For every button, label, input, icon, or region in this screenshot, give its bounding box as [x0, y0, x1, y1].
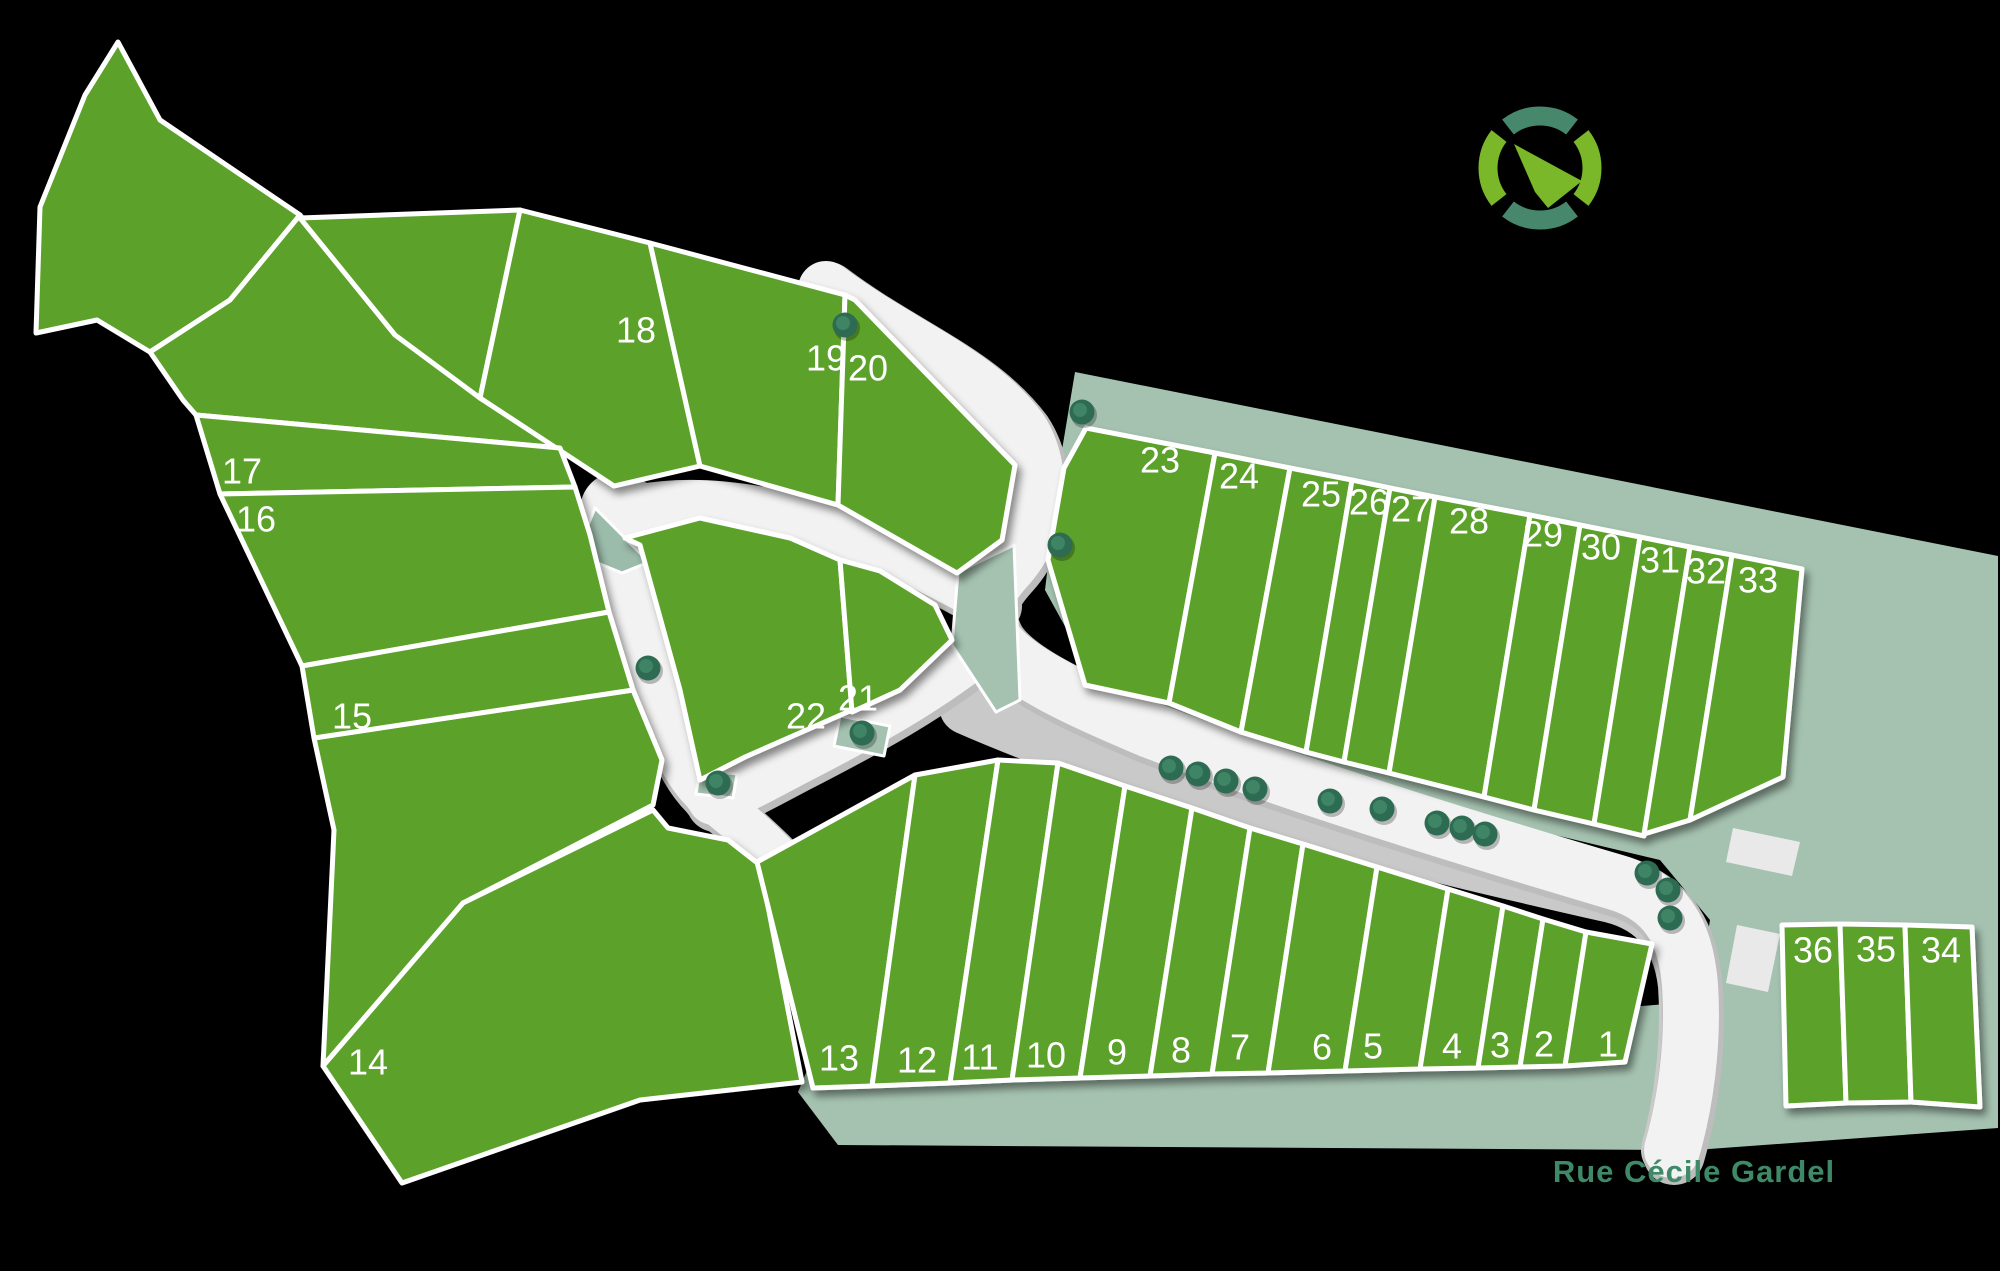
lot-label-19: 19 — [806, 338, 846, 379]
lot-label-25: 25 — [1301, 474, 1341, 515]
lot-label-4: 4 — [1442, 1026, 1462, 1067]
lot-label-34: 34 — [1921, 930, 1961, 971]
lot-label-26: 26 — [1349, 482, 1389, 523]
street-name: Rue Cécile Gardel — [1553, 1154, 1835, 1189]
lot-label-11: 11 — [961, 1037, 998, 1078]
lot-label-29: 29 — [1523, 514, 1563, 555]
lot-label-18: 18 — [616, 310, 656, 351]
lot-label-9: 9 — [1107, 1032, 1127, 1073]
lot-label-16: 16 — [236, 499, 276, 540]
compass-needle-icon — [1514, 144, 1582, 208]
lot-label-28: 28 — [1449, 501, 1489, 542]
lot-label-32: 32 — [1686, 551, 1726, 592]
compass-ring-arc — [1508, 209, 1572, 220]
lot-label-35: 35 — [1856, 929, 1896, 970]
lot-label-20: 20 — [848, 348, 888, 389]
lot-label-12: 12 — [897, 1040, 937, 1081]
lot-label-22: 22 — [786, 696, 826, 737]
lot-label-23: 23 — [1140, 440, 1180, 481]
lot-label-5: 5 — [1363, 1026, 1383, 1067]
lot-label-17: 17 — [222, 451, 262, 492]
lot-label-2: 2 — [1534, 1024, 1554, 1065]
lot-label-6: 6 — [1312, 1027, 1332, 1068]
compass-icon — [1488, 116, 1592, 220]
lot-label-24: 24 — [1219, 456, 1259, 497]
compass-ring-arc — [1581, 136, 1592, 200]
subdivision-map: 1819201716151422212324252627282930313233… — [0, 0, 2000, 1271]
lot-label-14: 14 — [348, 1042, 388, 1083]
lot-label-15: 15 — [332, 696, 372, 737]
lot-label-33: 33 — [1738, 560, 1778, 601]
lot-label-21: 21 — [838, 678, 878, 719]
lot-label-8: 8 — [1171, 1030, 1191, 1071]
lot-label-1: 1 — [1598, 1024, 1618, 1065]
lot-label-30: 30 — [1581, 527, 1621, 568]
street-name-label: Rue Cécile Gardel — [1553, 1154, 1835, 1189]
lot-label-31: 31 — [1640, 540, 1680, 581]
lot-label-10: 10 — [1026, 1035, 1066, 1076]
compass-ring-arc — [1508, 116, 1572, 127]
lot-label-36: 36 — [1793, 930, 1833, 971]
lot-label-7: 7 — [1230, 1027, 1250, 1068]
compass-ring-arc — [1488, 136, 1499, 200]
site-plan-stage: 1819201716151422212324252627282930313233… — [0, 0, 2000, 1271]
lot-label-3: 3 — [1490, 1025, 1510, 1066]
lot-label-13: 13 — [819, 1038, 859, 1079]
lot-label-27: 27 — [1391, 489, 1431, 530]
